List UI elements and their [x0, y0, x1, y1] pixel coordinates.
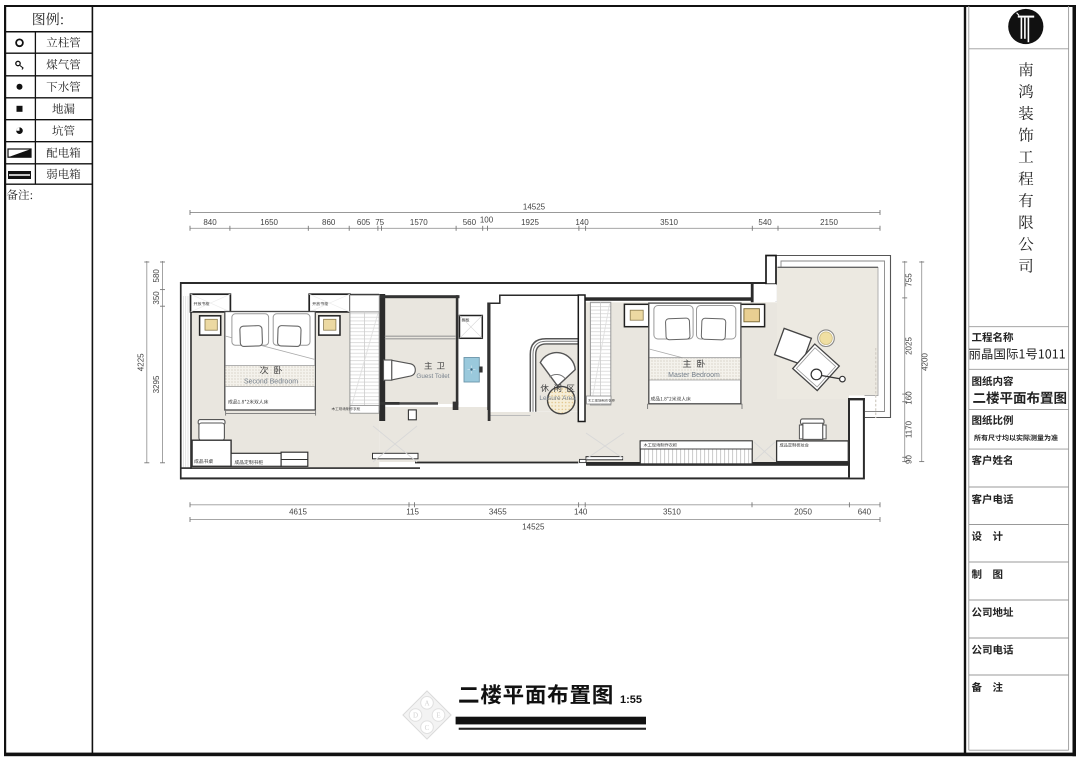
svg-text:E: E: [436, 712, 440, 720]
svg-text:Second Bedroom: Second Bedroom: [244, 379, 298, 386]
svg-text:640: 640: [858, 507, 872, 516]
svg-text:3455: 3455: [489, 507, 507, 516]
svg-text:Master Bedroom: Master Bedroom: [668, 372, 720, 379]
svg-text:2050: 2050: [794, 507, 812, 516]
svg-text:605: 605: [357, 218, 371, 227]
svg-text:1650: 1650: [260, 218, 278, 227]
svg-text:75: 75: [375, 218, 384, 227]
svg-text:3510: 3510: [663, 507, 681, 516]
svg-text:1925: 1925: [521, 218, 539, 227]
svg-text:755: 755: [905, 273, 914, 287]
svg-text:350: 350: [152, 291, 161, 305]
svg-text:A: A: [424, 699, 429, 707]
svg-text:1570: 1570: [410, 218, 428, 227]
svg-text:14525: 14525: [522, 522, 545, 531]
svg-text:2025: 2025: [905, 337, 914, 355]
svg-text:100: 100: [480, 216, 494, 225]
svg-text:580: 580: [152, 269, 161, 283]
svg-text:3295: 3295: [152, 375, 161, 393]
svg-text:1170: 1170: [905, 420, 914, 438]
svg-text:540: 540: [758, 218, 772, 227]
svg-text:1:55: 1:55: [620, 694, 642, 706]
svg-text:4225: 4225: [137, 353, 146, 371]
svg-text:90: 90: [905, 455, 914, 464]
svg-text:140: 140: [574, 507, 588, 516]
svg-text:3510: 3510: [660, 218, 678, 227]
svg-text:115: 115: [406, 507, 419, 516]
svg-text:840: 840: [203, 218, 217, 227]
svg-text:860: 860: [322, 218, 336, 227]
svg-text:14525: 14525: [523, 203, 546, 212]
svg-text:Leisure Area: Leisure Area: [539, 395, 576, 402]
svg-text:C: C: [425, 724, 430, 732]
svg-text:560: 560: [463, 218, 477, 227]
svg-text:160: 160: [905, 391, 914, 405]
svg-text:D: D: [413, 712, 418, 720]
svg-text:2150: 2150: [820, 218, 838, 227]
svg-text:4200: 4200: [921, 353, 930, 371]
svg-text:Guest Toilet: Guest Toilet: [416, 373, 449, 380]
svg-text:4615: 4615: [289, 507, 307, 516]
svg-text:140: 140: [575, 218, 589, 227]
